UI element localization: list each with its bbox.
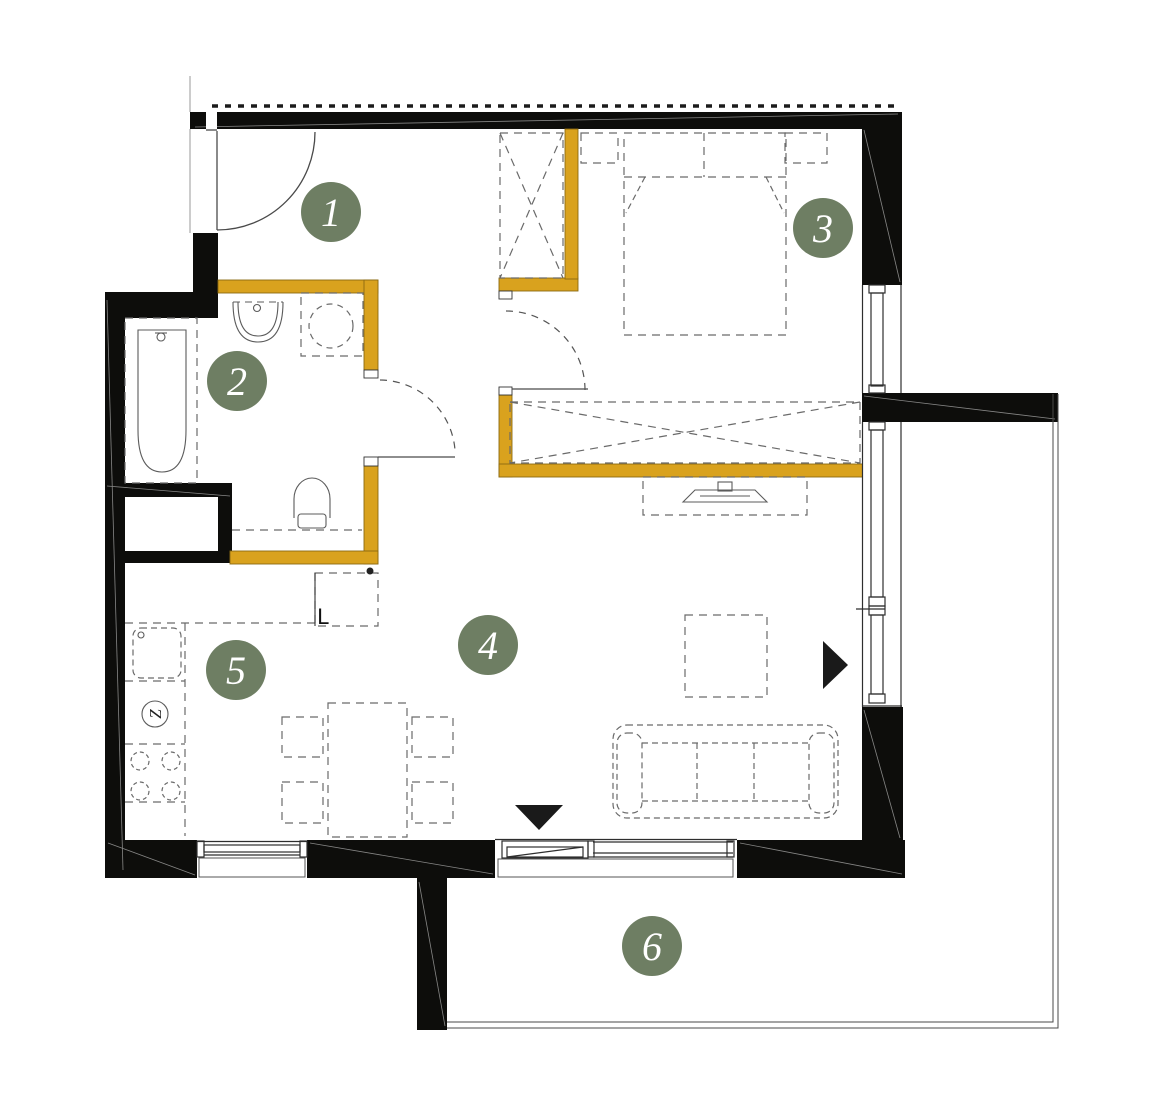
entry-jamb-slit	[206, 112, 217, 129]
jamb-bedroom-lower	[499, 387, 512, 395]
bedroom-wardrobe	[500, 133, 563, 278]
kitchen-sink-faucet	[138, 632, 144, 638]
bathtub-faucet	[157, 333, 165, 341]
dining-chair	[282, 717, 323, 757]
svg-text:2: 2	[227, 359, 247, 404]
kitchen-sink	[133, 628, 181, 678]
kitchen-window-sill	[199, 858, 305, 877]
bedroom-door-swing	[506, 311, 585, 390]
accent-bath-low-v	[364, 466, 378, 564]
coffee-table	[685, 615, 767, 697]
stove-burner	[131, 752, 149, 770]
stove-burner	[162, 752, 180, 770]
svg-text:6: 6	[642, 924, 662, 969]
door-jambs	[364, 291, 512, 466]
window-arrow-right-icon	[823, 641, 848, 689]
entrance-door	[206, 130, 315, 230]
floor-plan: 1 2 3 4 5 6 L Z	[0, 0, 1154, 1104]
room-marker-1: 1	[301, 182, 361, 242]
walls	[105, 112, 1058, 1030]
bathroom-door-swing	[380, 380, 455, 450]
wall-hatch-lines	[107, 114, 1055, 1026]
bathtub-inner	[138, 330, 186, 472]
wall-bottom-right	[737, 840, 905, 878]
room-marker-3: 3	[793, 198, 853, 258]
bedroom-door	[506, 311, 588, 390]
svg-text:4: 4	[478, 623, 498, 668]
nightstand	[581, 133, 618, 163]
wall-entry-pier	[193, 233, 218, 292]
windows	[197, 285, 902, 877]
living-wardrobe	[510, 402, 860, 463]
wall-bottom-mid	[307, 840, 495, 878]
balcony-door-sill	[498, 859, 733, 877]
washing-machine-drum	[309, 304, 353, 348]
balcony-railing	[447, 394, 1058, 1028]
shaft-niche	[125, 497, 218, 551]
fridge-label: L	[317, 605, 329, 629]
room-marker-5: 5	[206, 640, 266, 700]
bedroom-window	[862, 285, 902, 393]
accent-bedroom-h	[499, 278, 578, 291]
fridge-hinge-dot	[367, 568, 374, 575]
bed	[624, 133, 786, 335]
accent-bath-top-h	[218, 280, 378, 293]
bathroom-sink	[233, 302, 283, 342]
toilet	[294, 478, 330, 528]
dishwasher-label: Z	[146, 709, 165, 719]
tv	[683, 482, 767, 502]
balcony-door-window	[495, 840, 737, 878]
room-marker-2: 2	[207, 351, 267, 411]
wall-bath-top-band	[105, 292, 218, 318]
svg-text:1: 1	[321, 190, 341, 235]
living-window	[856, 422, 902, 707]
kitchen-window	[197, 840, 307, 877]
dining-chair	[282, 782, 323, 823]
nightstand	[785, 133, 827, 163]
accent-bath-low-h	[230, 551, 378, 564]
dining-table	[328, 703, 407, 837]
stove-burner	[162, 782, 180, 800]
doors	[206, 130, 588, 457]
dining-chair	[412, 782, 453, 823]
accent-bedroom-v	[565, 129, 578, 279]
accent-bath-top-v	[364, 280, 378, 370]
arrows	[515, 641, 848, 830]
entrance-door-swing	[217, 132, 315, 230]
stove-burner	[131, 782, 149, 800]
balcony-exit-arrow-down-icon	[515, 805, 563, 830]
jamb-bath-upper	[364, 370, 378, 378]
jamb-bath-lower	[364, 457, 378, 466]
svg-text:5: 5	[226, 648, 246, 693]
accent-wardrobe-h	[499, 464, 865, 477]
washing-machine	[301, 293, 363, 356]
bathroom-door	[378, 380, 455, 457]
svg-text:3: 3	[812, 206, 833, 251]
dining-chair	[412, 717, 453, 757]
jamb-bedroom-upper	[499, 291, 512, 299]
furniture	[125, 133, 860, 837]
sofa	[613, 725, 838, 818]
room-marker-6: 6	[622, 916, 682, 976]
room-marker-4: 4	[458, 615, 518, 675]
